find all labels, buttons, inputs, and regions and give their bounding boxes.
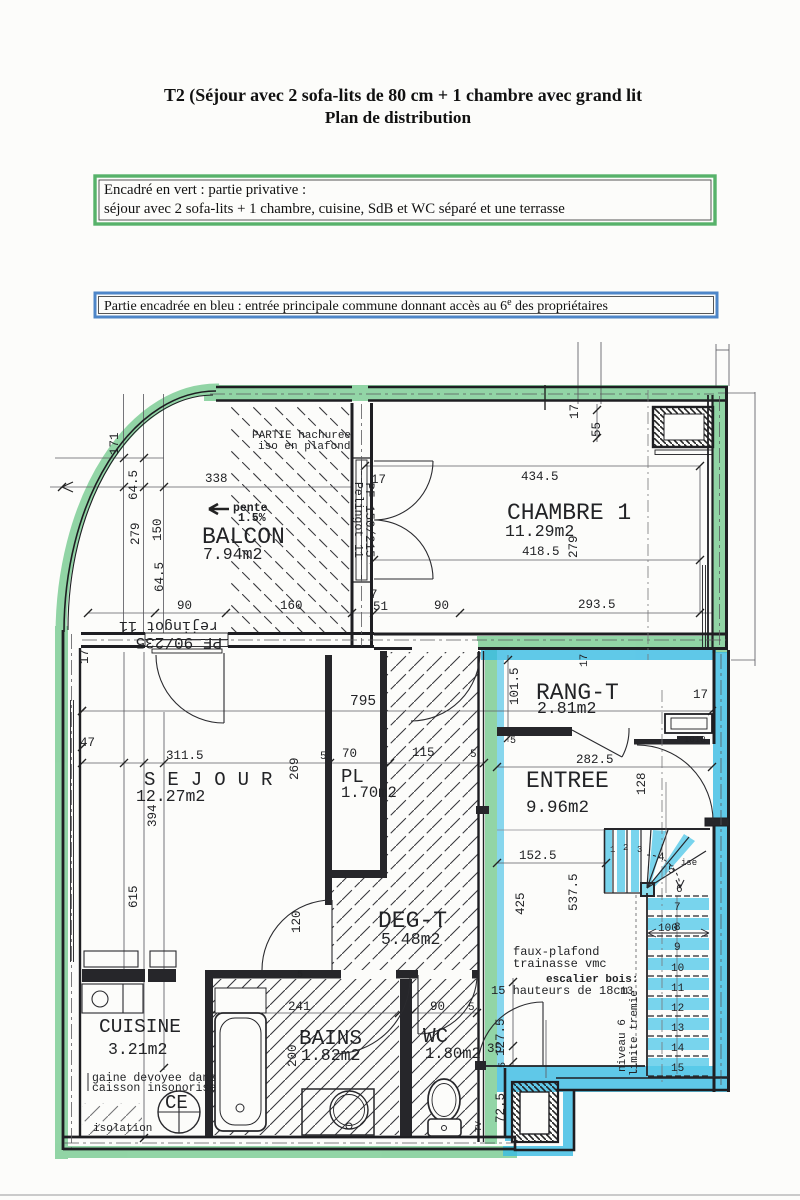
svg-text:311.5: 311.5 xyxy=(166,749,204,763)
svg-text:17: 17 xyxy=(371,473,386,487)
svg-text:12: 12 xyxy=(671,1003,684,1015)
svg-text:72.5: 72.5 xyxy=(494,1093,508,1123)
svg-text:150: 150 xyxy=(151,518,165,541)
svg-text:rejingot 11: rejingot 11 xyxy=(119,617,218,634)
svg-text:269: 269 xyxy=(288,757,302,780)
svg-text:trainasse vmc: trainasse vmc xyxy=(513,957,607,971)
svg-text:9: 9 xyxy=(674,942,681,954)
svg-text:7.94m2: 7.94m2 xyxy=(203,545,262,564)
svg-text:5: 5 xyxy=(498,1062,509,1068)
svg-text:PF 90/235: PF 90/235 xyxy=(136,633,222,651)
svg-text:1.80m2: 1.80m2 xyxy=(425,1045,481,1063)
svg-text:iso en plafond: iso en plafond xyxy=(258,441,350,453)
svg-text:615: 615 xyxy=(127,885,141,908)
svg-text:394: 394 xyxy=(146,804,160,827)
svg-text:795: 795 xyxy=(350,694,376,710)
svg-text:3: 3 xyxy=(637,845,642,855)
svg-text:47: 47 xyxy=(80,736,95,750)
svg-text:9.96m2: 9.96m2 xyxy=(526,798,589,818)
svg-text:55: 55 xyxy=(590,422,604,437)
svg-text:15 hauteurs de 18cm: 15 hauteurs de 18cm xyxy=(491,984,628,998)
svg-text:15: 15 xyxy=(671,1063,684,1075)
svg-text:171: 171 xyxy=(108,432,122,455)
svg-text:1.82m2: 1.82m2 xyxy=(301,1046,360,1065)
svg-text:90: 90 xyxy=(434,599,449,613)
svg-text:2.81m2: 2.81m2 xyxy=(537,699,596,718)
svg-text:434.5: 434.5 xyxy=(521,470,559,484)
svg-text:120: 120 xyxy=(290,910,304,933)
svg-text:13: 13 xyxy=(671,1023,684,1035)
svg-text:35: 35 xyxy=(487,1042,502,1056)
svg-text:100: 100 xyxy=(658,923,678,935)
svg-text:51: 51 xyxy=(373,600,388,614)
svg-text:14: 14 xyxy=(671,1043,685,1055)
svg-text:128: 128 xyxy=(635,772,649,795)
svg-text:séjour avec 2 sofa-lits + 1 ch: séjour avec 2 sofa-lits + 1 chambre, cui… xyxy=(104,201,565,217)
svg-text:17: 17 xyxy=(568,404,582,419)
svg-text:241: 241 xyxy=(288,1000,311,1014)
svg-text:1.70m2: 1.70m2 xyxy=(341,784,397,802)
svg-text:caisson insonorise: caisson insonorise xyxy=(92,1082,216,1095)
svg-text:CUISINE: CUISINE xyxy=(99,1016,181,1038)
svg-text:17: 17 xyxy=(78,649,92,664)
svg-text:70: 70 xyxy=(342,747,357,761)
svg-text:152.5: 152.5 xyxy=(519,849,557,863)
svg-text:TV: TV xyxy=(474,1121,484,1132)
svg-text:1: 1 xyxy=(610,845,615,855)
svg-text:isolation: isolation xyxy=(93,1123,152,1135)
svg-text:115: 115 xyxy=(412,746,435,760)
svg-text:10: 10 xyxy=(671,963,684,975)
svg-text:282.5: 282.5 xyxy=(576,753,614,767)
svg-text:64.5: 64.5 xyxy=(153,562,167,592)
svg-text:ise: ise xyxy=(681,858,697,868)
svg-text:11: 11 xyxy=(671,983,685,995)
svg-text:Partie encadrée en bleu : entr: Partie encadrée en bleu : entrée princip… xyxy=(104,297,608,314)
svg-text:537.5: 537.5 xyxy=(567,873,581,911)
svg-text:279: 279 xyxy=(567,535,581,558)
svg-text:101.5: 101.5 xyxy=(508,667,522,705)
svg-text:4: 4 xyxy=(658,852,665,864)
svg-text:limite tremie: limite tremie xyxy=(629,990,641,1076)
svg-text:5.48m2: 5.48m2 xyxy=(381,930,440,949)
svg-text:338: 338 xyxy=(205,472,228,486)
svg-text:5: 5 xyxy=(320,751,327,763)
svg-text:200: 200 xyxy=(286,1044,300,1067)
svg-text:64.5: 64.5 xyxy=(127,470,141,500)
svg-text:17: 17 xyxy=(693,688,708,702)
svg-text:17: 17 xyxy=(579,654,591,667)
svg-text:5: 5 xyxy=(470,749,477,761)
svg-text:ENTREE: ENTREE xyxy=(526,768,609,794)
svg-text:90: 90 xyxy=(177,599,192,613)
svg-text:5: 5 xyxy=(297,970,303,981)
svg-text:418.5: 418.5 xyxy=(522,545,560,559)
svg-text:425: 425 xyxy=(514,892,528,915)
svg-text:Encadré en vert : partie priva: Encadré en vert : partie privative : xyxy=(104,182,306,198)
svg-text:1.5%: 1.5% xyxy=(238,512,266,525)
svg-text:160: 160 xyxy=(280,599,303,613)
svg-text:12.27m2: 12.27m2 xyxy=(136,787,205,806)
svg-text:Plan de distribution: Plan de distribution xyxy=(325,108,472,127)
svg-text:T2 (Séjour avec 2 sofa-lits de: T2 (Séjour avec 2 sofa-lits de 80 cm + 1… xyxy=(164,85,642,106)
svg-text:PF 150/215: PF 150/215 xyxy=(362,482,376,557)
svg-text:6: 6 xyxy=(676,884,683,896)
svg-text:293.5: 293.5 xyxy=(578,598,616,612)
svg-text:CE: CE xyxy=(165,1092,188,1114)
svg-text:5: 5 xyxy=(668,865,675,877)
svg-text:11.29m2: 11.29m2 xyxy=(505,522,574,541)
svg-text:niveau 6: niveau 6 xyxy=(617,1019,629,1072)
svg-text:3.21m2: 3.21m2 xyxy=(108,1040,167,1059)
svg-text:13: 13 xyxy=(620,986,633,998)
svg-text:7: 7 xyxy=(674,902,681,914)
svg-text:5: 5 xyxy=(468,1002,475,1014)
svg-text:2: 2 xyxy=(623,843,628,853)
svg-text:90: 90 xyxy=(430,1000,445,1014)
svg-text:5: 5 xyxy=(510,736,516,747)
svg-text:279: 279 xyxy=(129,522,143,545)
svg-text:1010: 1010 xyxy=(684,735,706,745)
